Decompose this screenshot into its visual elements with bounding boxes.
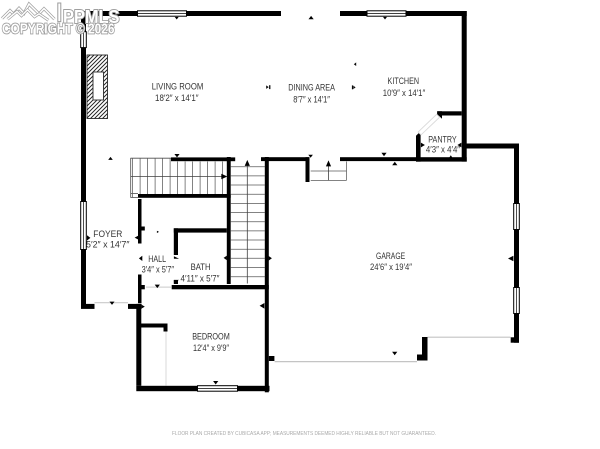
svg-text:8′7″ x 14′1″: 8′7″ x 14′1″ (293, 94, 330, 104)
svg-text:LIVING ROOM: LIVING ROOM (152, 82, 204, 92)
svg-text:BATH: BATH (191, 262, 211, 272)
svg-text:4′11″ x 5′7″: 4′11″ x 5′7″ (181, 274, 220, 284)
svg-text:BEDROOM: BEDROOM (192, 331, 230, 341)
svg-text:10′9″ x 14′1″: 10′9″ x 14′1″ (383, 88, 426, 98)
svg-text:KITCHEN: KITCHEN (388, 76, 420, 86)
svg-text:DINING AREA: DINING AREA (288, 82, 335, 92)
svg-text:FOYER: FOYER (93, 229, 122, 239)
svg-text:FLOOR PLAN CREATED BY CUBICASA: FLOOR PLAN CREATED BY CUBICASA APP; MEAS… (172, 431, 436, 437)
svg-text:12′4″ x 9′9″: 12′4″ x 9′9″ (193, 343, 229, 353)
svg-text:COPYRIGHT © 2026: COPYRIGHT © 2026 (2, 22, 115, 38)
svg-text:PANTRY: PANTRY (428, 134, 457, 144)
svg-text:GARAGE: GARAGE (376, 251, 405, 261)
svg-text:3′4″ x 5′7″: 3′4″ x 5′7″ (142, 265, 174, 275)
svg-text:18′2″ x 14′1″: 18′2″ x 14′1″ (155, 93, 199, 103)
svg-text:HALL: HALL (148, 254, 166, 264)
svg-text:5′2″ x 14′7″: 5′2″ x 14′7″ (86, 240, 130, 250)
svg-text:4′3″ x 4′4″: 4′3″ x 4′4″ (426, 145, 460, 155)
svg-text:24′6″ x 19′4″: 24′6″ x 19′4″ (370, 262, 412, 272)
